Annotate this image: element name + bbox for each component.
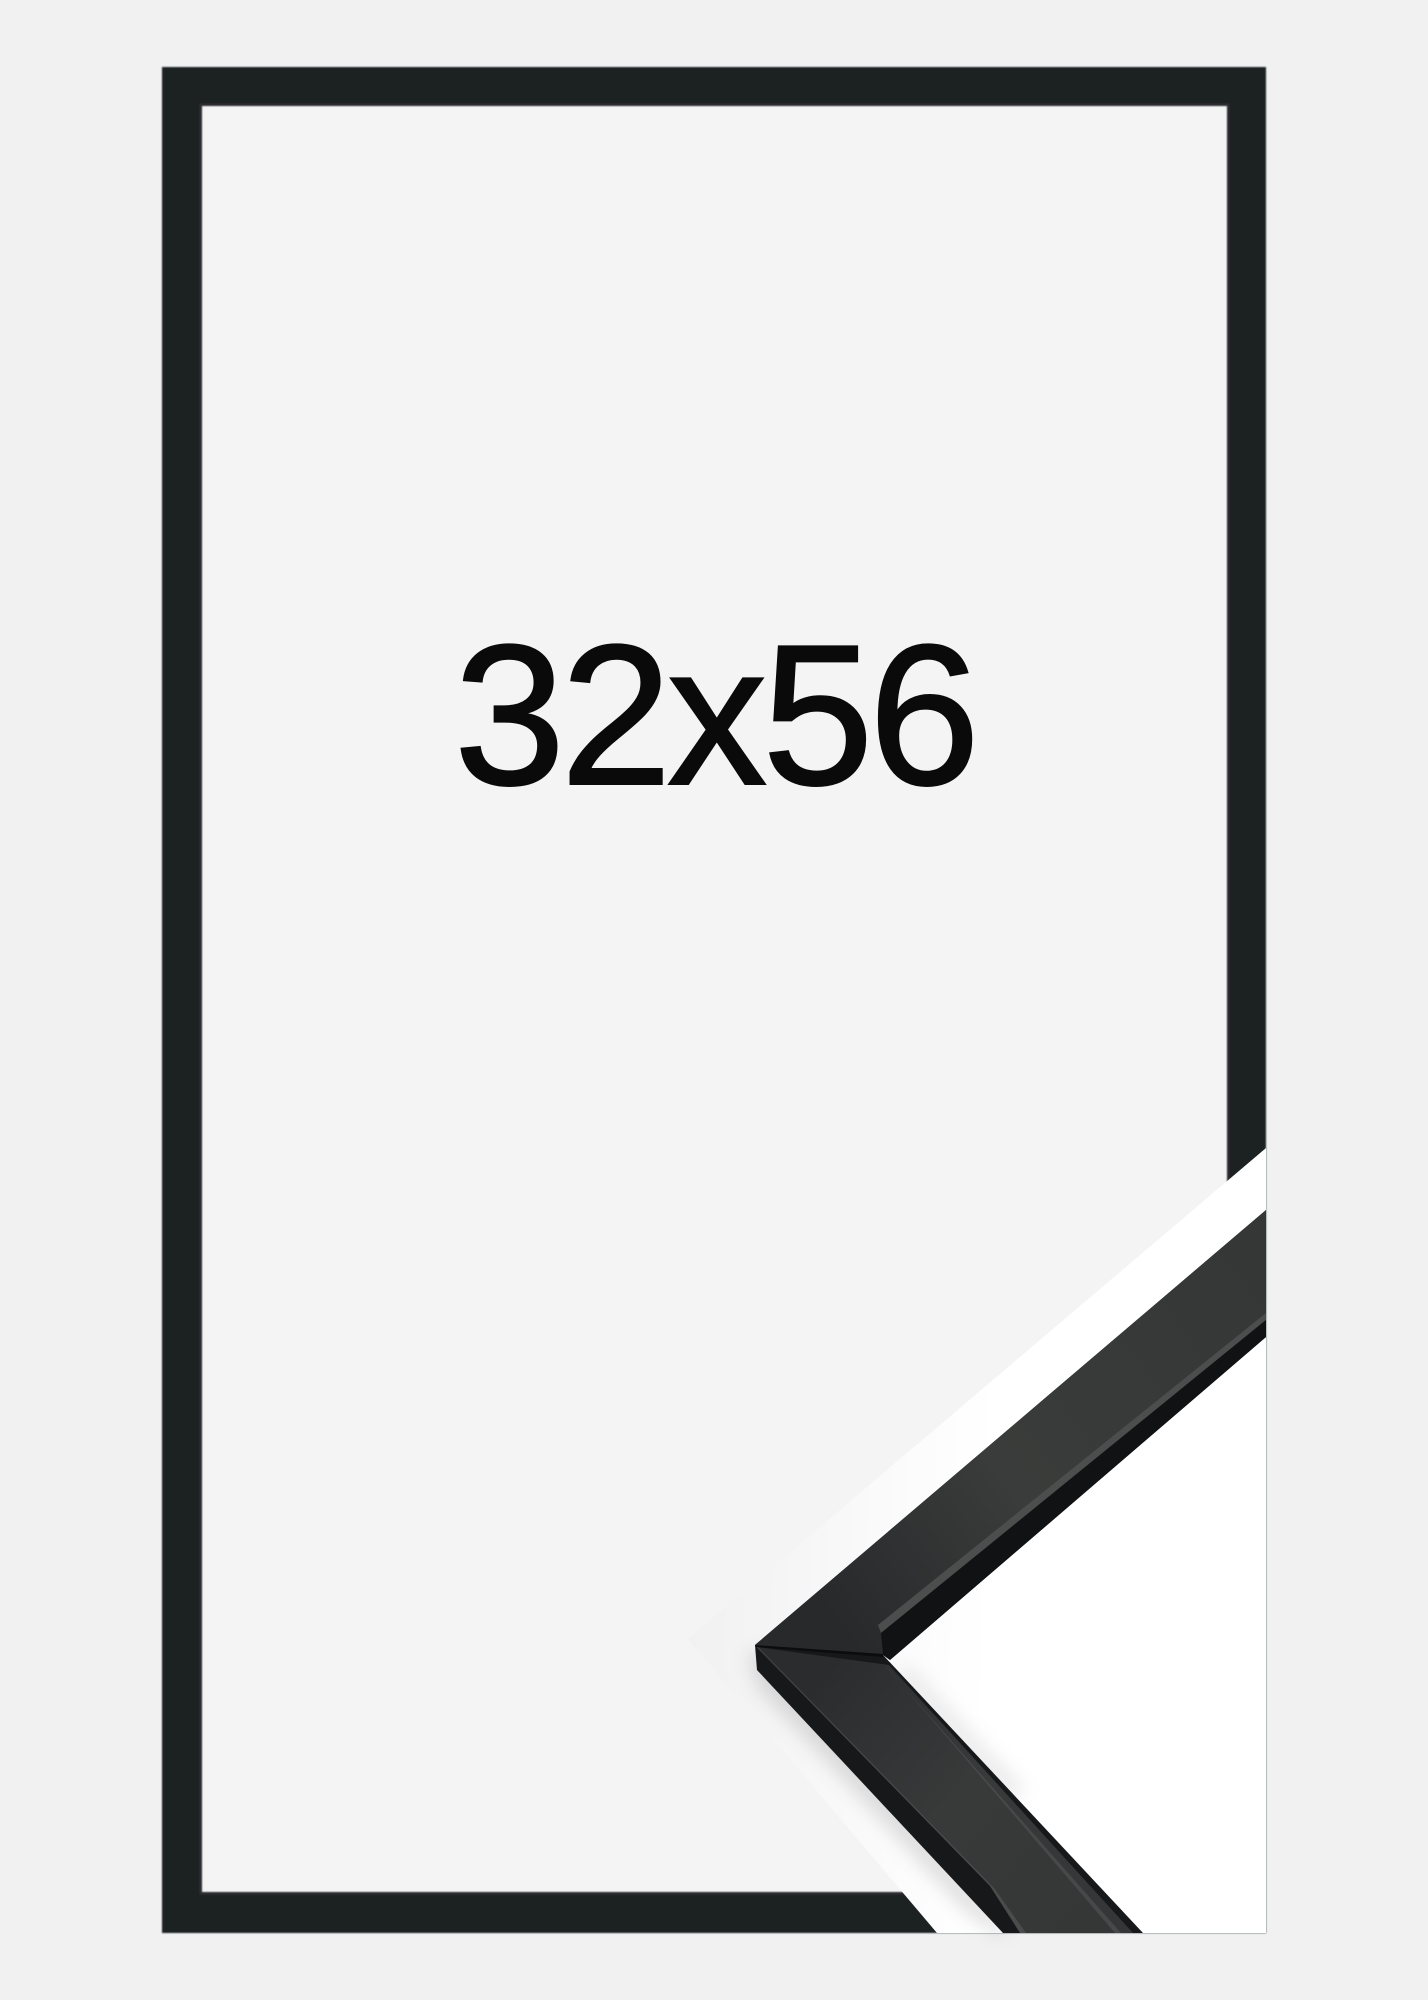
svg-text:32x56: 32x56 bbox=[454, 604, 980, 827]
